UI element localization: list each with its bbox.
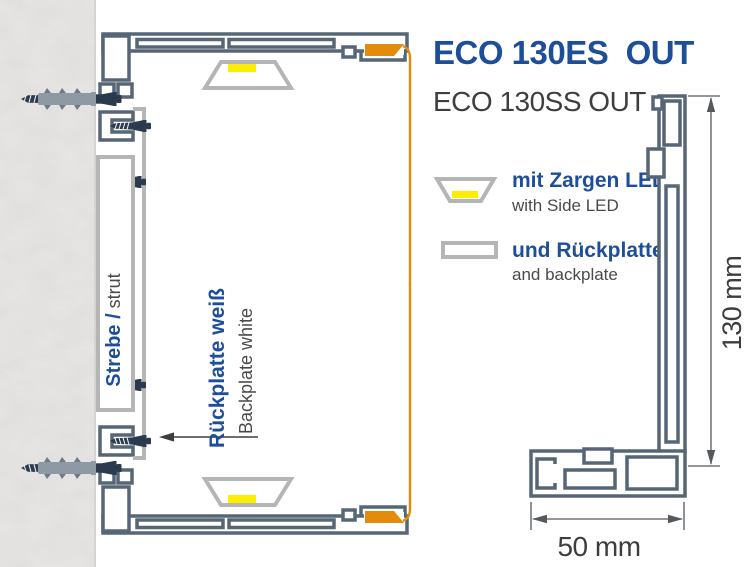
legend-item-label-en: with Side LED: [511, 196, 619, 215]
legend: mit Zargen LED with Side LED und Rückpla…: [437, 169, 667, 284]
diagram-canvas: Strebe / strut Rückplatte weiß Backplate…: [0, 0, 756, 567]
profile-dimension-drawing: [531, 96, 685, 496]
arrow-down-icon: [707, 450, 715, 465]
backplate-icon: [443, 243, 496, 257]
height-dimension: 130 mm: [688, 96, 747, 466]
backplate-label-de: Rückplatte weiß: [206, 288, 229, 448]
arrow-up-icon: [707, 97, 715, 112]
width-dimension-label: 50 mm: [557, 531, 640, 562]
wall-texture: [0, 0, 96, 567]
legend-item-label-en: and backplate: [512, 265, 618, 284]
arrow-left-icon: [159, 432, 174, 441]
technical-sheet: Strebe / strut Rückplatte weiß Backplate…: [0, 0, 756, 567]
arrow-left-icon: [532, 515, 547, 523]
page-subtitle: ECO 130SS OUT: [433, 86, 646, 117]
legend-item-label-de: mit Zargen LED: [512, 169, 667, 192]
legend-item-label-de: und Rückplatte: [512, 239, 664, 262]
backplate-label-en: Backplate white: [236, 308, 256, 434]
height-dimension-label: 130 mm: [717, 256, 747, 351]
page-title: ECO 130ES OUT: [433, 34, 694, 71]
strut-label: Strebe / strut: [103, 273, 125, 386]
led-strip-icon: [452, 191, 478, 198]
backplate-annotation: Rückplatte weiß Backplate white: [159, 288, 258, 448]
arrow-right-icon: [668, 515, 683, 523]
width-dimension: 50 mm: [531, 502, 684, 562]
